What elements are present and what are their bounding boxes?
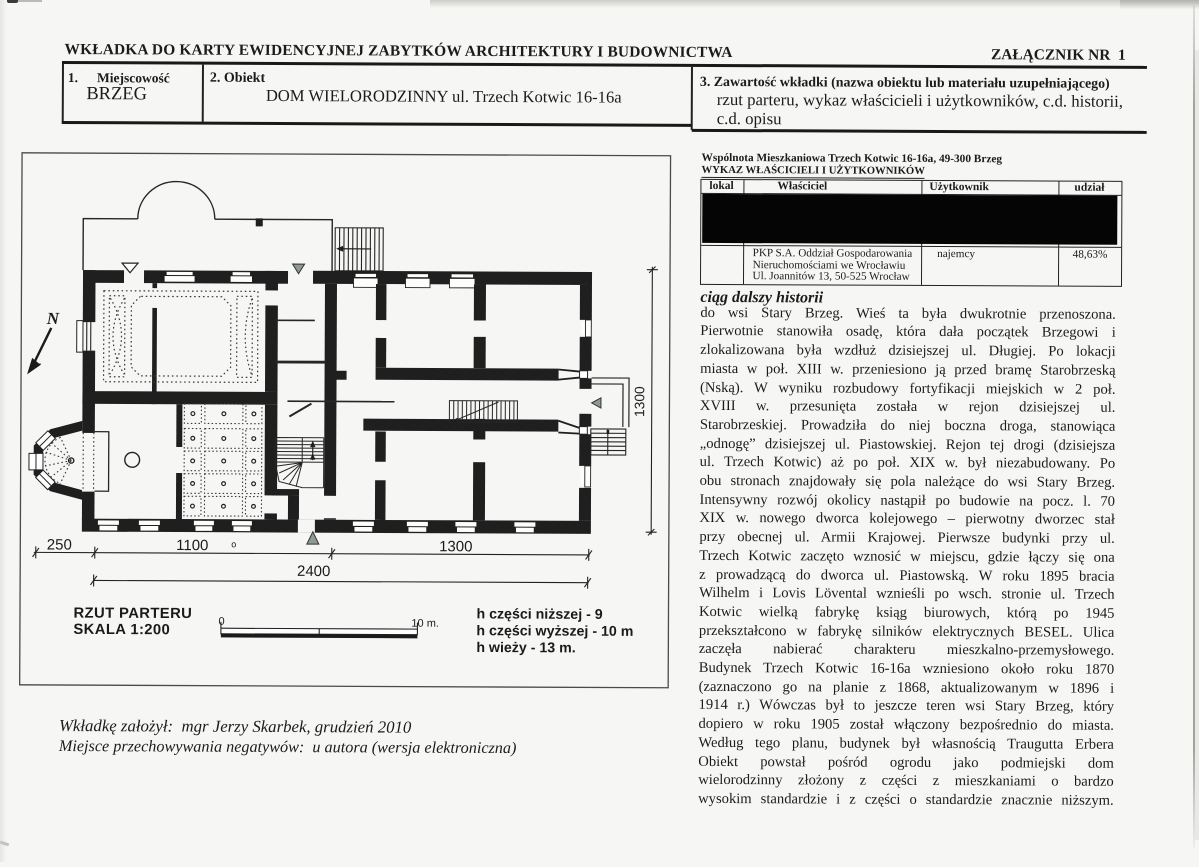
svg-text:250: 250 xyxy=(47,536,72,553)
svg-text:h części wyższej - 10 m: h części wyższej - 10 m xyxy=(476,623,633,640)
svg-text:RZUT PARTERU: RZUT PARTERU xyxy=(73,606,192,623)
svg-text:1300: 1300 xyxy=(632,386,647,417)
svg-text:h wieży - 13 m.: h wieży - 13 m. xyxy=(476,640,575,656)
svg-text:h części niższej - 9: h części niższej - 9 xyxy=(476,606,602,623)
svg-text:10 m.: 10 m. xyxy=(411,618,439,630)
svg-text:N: N xyxy=(46,309,60,328)
svg-text:1300: 1300 xyxy=(439,538,472,555)
svg-text:1100: 1100 xyxy=(176,537,208,554)
svg-text:SKALA 1:200: SKALA 1:200 xyxy=(73,622,170,638)
svg-text:2400: 2400 xyxy=(297,563,330,580)
svg-text:o: o xyxy=(231,539,236,549)
svg-text:0: 0 xyxy=(218,616,224,628)
